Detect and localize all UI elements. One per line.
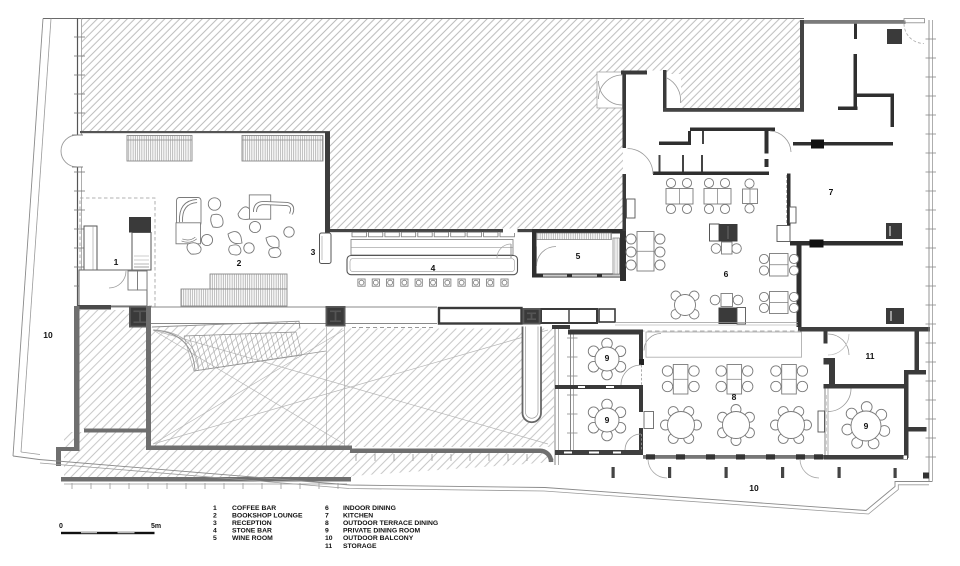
svg-text:KITCHEN: KITCHEN <box>343 512 373 519</box>
svg-text:STORAGE: STORAGE <box>343 543 377 550</box>
svg-text:5: 5 <box>213 535 217 542</box>
svg-text:0: 0 <box>59 523 63 530</box>
svg-text:9: 9 <box>325 528 329 535</box>
svg-text:3: 3 <box>311 247 316 257</box>
svg-text:BOOKSHOP LOUNGE: BOOKSHOP LOUNGE <box>232 512 303 519</box>
svg-text:10: 10 <box>749 483 759 493</box>
svg-text:11: 11 <box>325 543 332 550</box>
svg-text:5m: 5m <box>151 523 161 530</box>
svg-text:10: 10 <box>325 535 333 542</box>
svg-text:7: 7 <box>829 187 834 197</box>
svg-text:4: 4 <box>213 528 217 535</box>
svg-text:PRIVATE DINING ROOM: PRIVATE DINING ROOM <box>343 528 420 535</box>
svg-text:1: 1 <box>213 505 217 512</box>
svg-text:2: 2 <box>213 512 217 519</box>
svg-text:8: 8 <box>325 520 329 527</box>
svg-text:11: 11 <box>866 351 875 361</box>
svg-text:4: 4 <box>431 263 436 273</box>
svg-text:9: 9 <box>605 353 610 363</box>
svg-text:6: 6 <box>325 505 329 512</box>
svg-text:WINE ROOM: WINE ROOM <box>232 535 273 542</box>
svg-text:5: 5 <box>576 251 581 261</box>
svg-text:10: 10 <box>43 330 53 340</box>
svg-text:2: 2 <box>237 258 242 268</box>
svg-text:STONE BAR: STONE BAR <box>232 528 272 535</box>
svg-text:7: 7 <box>325 512 329 519</box>
svg-text:9: 9 <box>605 415 610 425</box>
svg-text:9: 9 <box>864 421 869 431</box>
svg-text:COFFEE BAR: COFFEE BAR <box>232 505 276 512</box>
svg-text:RECEPTION: RECEPTION <box>232 520 272 527</box>
svg-text:1: 1 <box>114 257 119 267</box>
svg-text:6: 6 <box>724 269 729 279</box>
svg-text:8: 8 <box>732 392 737 402</box>
svg-text:OUTDOOR BALCONY: OUTDOOR BALCONY <box>343 535 414 542</box>
svg-text:OUTDOOR TERRACE DINING: OUTDOOR TERRACE DINING <box>343 520 438 527</box>
svg-text:INDOOR DINING: INDOOR DINING <box>343 505 396 512</box>
svg-text:3: 3 <box>213 520 217 527</box>
